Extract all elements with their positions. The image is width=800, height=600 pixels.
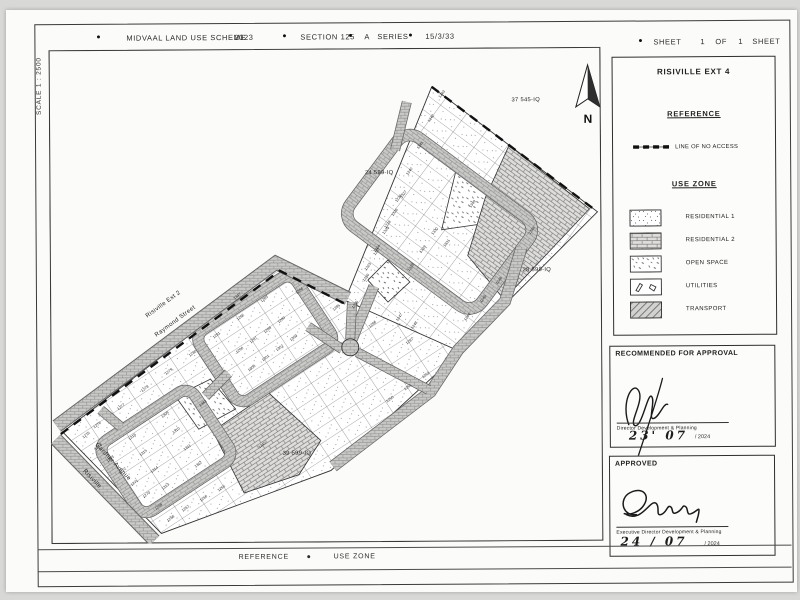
zone-label: RESIDENTIAL 1 (685, 214, 734, 220)
legend-row-residential1: RESIDENTIAL 1 (613, 209, 775, 227)
area-label-e: 28 599-IQ (523, 267, 552, 273)
utilities-swatch-icon (630, 278, 662, 295)
residential1-swatch-icon (629, 209, 661, 226)
roundabout (342, 339, 359, 356)
recommended-title: RECOMMENDED FOR APPROVAL (615, 350, 738, 358)
area-label-nw: 37 545-IQ (512, 97, 541, 103)
north-arrow-icon: N (576, 65, 600, 126)
no-access-label: LINE OF NO ACCESS (675, 144, 738, 150)
legend-panel: RISIVILLE EXT 4 REFERENCE LINE OF NO ACC… (612, 56, 778, 336)
legend-row-open-space: OPEN SPACE (614, 255, 776, 273)
header-bullet: ● (348, 32, 353, 39)
header-bullet: ● (96, 34, 101, 41)
zone-label: UTILITIES (686, 283, 718, 289)
approved-box: APPROVED Executive Director Development … (609, 455, 776, 557)
scheme-title: MIDVAAL LAND USE SCHEME (126, 33, 246, 43)
footer-bullet: ● (307, 554, 312, 561)
zone-label: TRANSPORT (686, 306, 727, 312)
zone-label: RESIDENTIAL 2 (686, 237, 735, 243)
sheet-number: 1 (700, 37, 705, 46)
footer-reference-label: REFERENCE (239, 554, 289, 561)
sheet-word: SHEET (653, 37, 681, 46)
plan-map: N 37 545-IQ 24 599-IQ 28 599-IQ 39 599-I… (48, 47, 603, 544)
series-word: SERIES (377, 32, 408, 41)
transport-swatch-icon (630, 301, 662, 318)
plan-map-svg: N 37 545-IQ 24 599-IQ 28 599-IQ 39 599-I… (48, 47, 603, 544)
sheet-content: ● MIDVAAL LAND USE SCHEME 2023 ● SECTION… (4, 8, 799, 595)
open-space-swatch-icon (630, 255, 662, 272)
area-label-w: 24 599-IQ (365, 170, 394, 176)
approved-title: APPROVED (615, 460, 658, 467)
residential2-swatch-icon (630, 232, 662, 249)
recommended-approval-box: RECOMMENDED FOR APPROVAL Director Develo… (609, 345, 776, 448)
area-label-s: 39 599-IQ (283, 451, 312, 457)
no-access-line-icon (633, 143, 669, 150)
north-label: N (584, 112, 593, 126)
header-bullet: ● (408, 32, 413, 39)
legend-row-utilities: UTILITIES (614, 278, 776, 296)
zone-label: OPEN SPACE (686, 260, 729, 266)
legend-row-residential2: RESIDENTIAL 2 (614, 232, 776, 250)
header-bullet: ● (638, 38, 643, 45)
footer-use-zone-label: USE ZONE (334, 553, 376, 560)
sheet-word-2: SHEET (752, 37, 780, 46)
legend-row-transport: TRANSPORT (614, 301, 776, 319)
section-label: SECTION 125 (300, 32, 355, 41)
use-zone-heading: USE ZONE (613, 179, 775, 189)
file-reference: 15/3/33 (425, 32, 454, 41)
recommended-date-handwritten: 23' 07 (629, 428, 688, 442)
township-title: RISIVILLE EXT 4 (613, 67, 775, 77)
sheet-total: 1 (738, 37, 743, 46)
header-bullet: ● (282, 33, 287, 40)
street-label-risiville-ext2: Risiville Ext 2 (145, 290, 182, 320)
of-word: OF (715, 37, 727, 46)
recommended-date-printed: / 2024 (695, 434, 710, 440)
scheme-year: 2023 (234, 33, 253, 42)
scanned-sheet: ● MIDVAAL LAND USE SCHEME 2023 ● SECTION… (6, 10, 797, 592)
series-letter: A (364, 32, 370, 41)
scale-label: SCALE 1 : 2500 (36, 57, 43, 115)
reference-heading: REFERENCE (613, 109, 775, 119)
